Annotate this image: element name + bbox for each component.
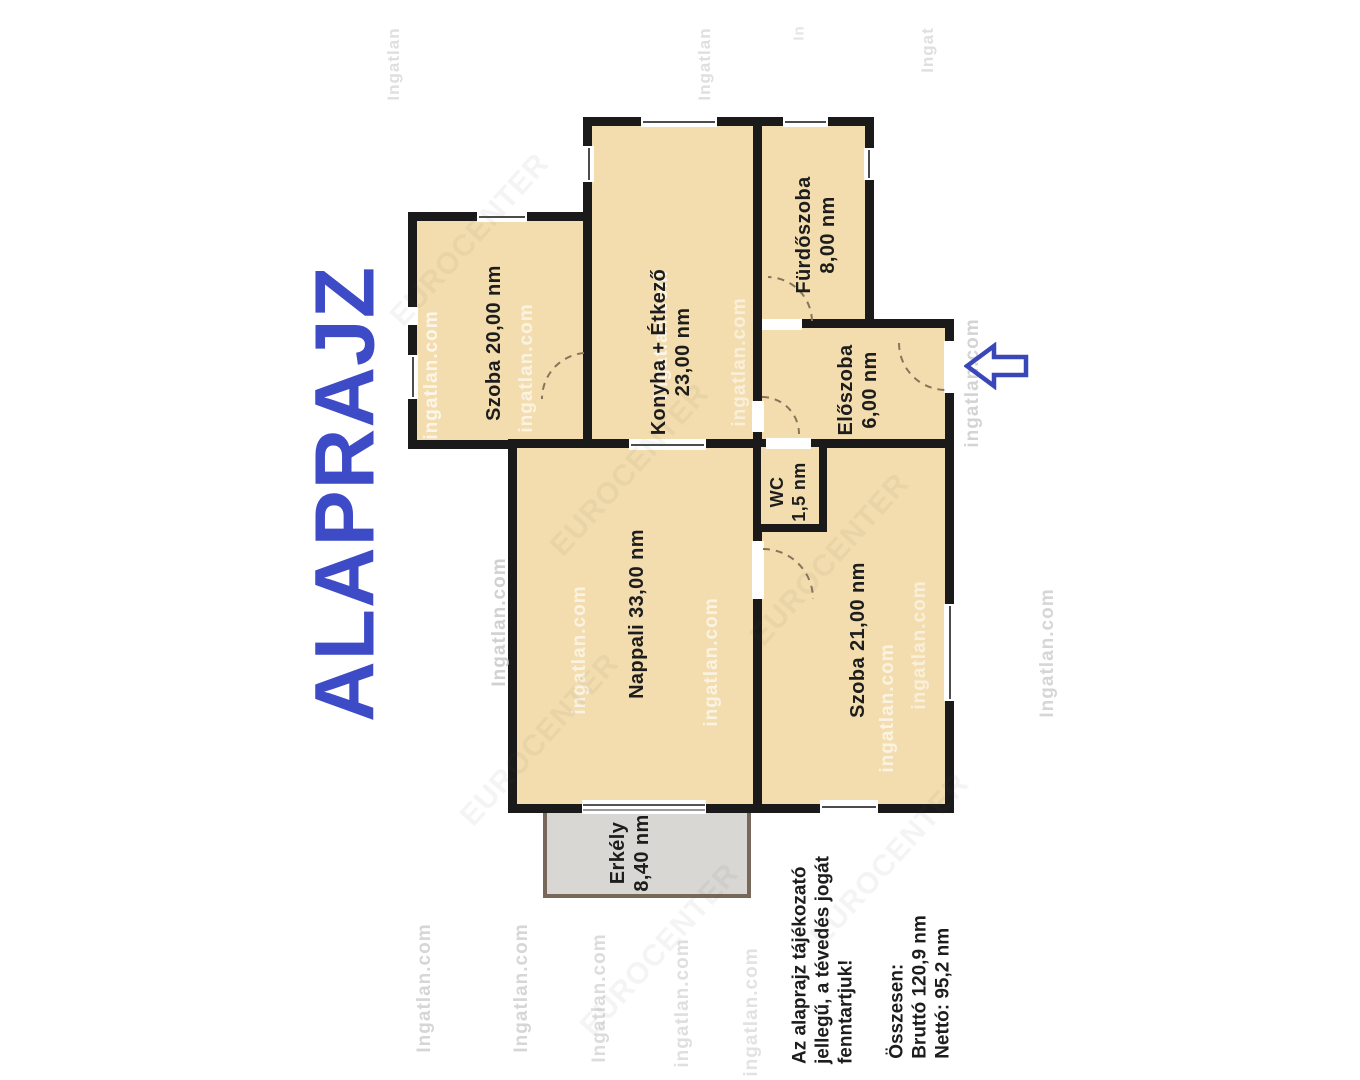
watermark: Ingatlan (695, 27, 715, 100)
totals-text: Összesen: Bruttó 120,9 nm Nettó: 95,2 nm (886, 915, 955, 1059)
label-szoba21: Szoba 21,00 nm (846, 562, 870, 718)
label-furdoszoba: Fürdőszoba 8,00 nm (792, 176, 840, 293)
plan-title: ALAPRAJZ (297, 266, 394, 722)
watermark: Ingatlan (384, 27, 404, 100)
totals-brutto: Bruttó 120,9 nm (909, 915, 932, 1059)
entrance-arrow-icon (964, 342, 1030, 390)
label-szoba20: Szoba 20,00 nm (482, 265, 506, 421)
watermark: ingatlan.com (909, 580, 931, 709)
watermark: Ingatlan.com (1037, 588, 1059, 717)
watermark: ingatlan.com (421, 310, 443, 439)
watermark: Ingat (918, 27, 938, 73)
label-eloszoba: Előszoba 6,00 nm (834, 345, 882, 436)
watermark: Ingatlan.com (414, 923, 436, 1052)
label-erkely: Erkély 8,40 nm (606, 814, 654, 891)
watermark: In (791, 25, 808, 40)
watermark: ingatlan.com (729, 297, 751, 426)
floorplan-canvas: ALAPRAJZ Szoba 20,00 nm Konyha + Étkező … (0, 0, 1360, 1080)
watermark: ingatlan.com (877, 643, 899, 772)
watermark: ingatlan.com (516, 303, 538, 432)
watermark: Ingatlan.com (511, 923, 533, 1052)
totals-heading: Összesen: (886, 915, 909, 1059)
watermark: ingatlan.com (701, 597, 723, 726)
disclaimer-text: Az alaprajz tájékozató jellegű, a tévedé… (789, 856, 858, 1064)
label-wc: WC 1,5 nm (766, 462, 810, 521)
watermark: Ingatlan.com (489, 557, 511, 686)
label-nappali: Nappali 33,00 nm (625, 529, 649, 699)
label-konyha: Konyha + Étkező 23,00 nm (647, 269, 695, 436)
watermark: ingatlan.com (741, 947, 763, 1076)
totals-netto: Nettó: 95,2 nm (932, 915, 955, 1059)
